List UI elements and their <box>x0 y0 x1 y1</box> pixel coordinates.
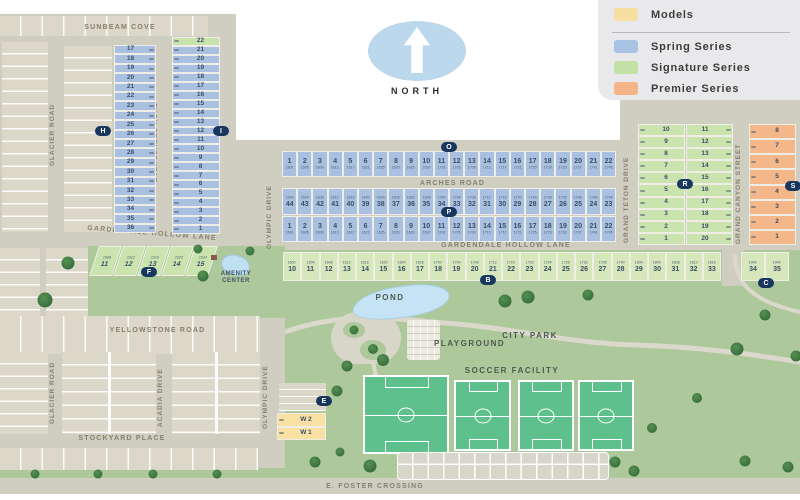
tree-icon <box>522 291 535 304</box>
hotspot-marker-I[interactable]: I <box>213 126 229 136</box>
lot-10[interactable]: 10 <box>638 124 685 136</box>
lot-address: 1737 <box>574 166 582 170</box>
lot-27[interactable]: 27 <box>114 139 156 148</box>
lot-12[interactable]: 160812 <box>320 252 338 281</box>
lot-address: 1736 <box>598 261 606 265</box>
hotspot-marker-R[interactable]: R <box>677 179 693 189</box>
lot-19[interactable]: 170419 <box>447 252 465 281</box>
lot-2[interactable]: 21605 <box>297 151 312 177</box>
address-mark <box>726 202 731 204</box>
lot-26[interactable]: 26 <box>114 130 156 139</box>
lot-18[interactable]: 181729 <box>540 151 555 177</box>
address-mark <box>149 58 154 60</box>
lot-40[interactable]: 161640 <box>343 188 358 215</box>
lot-4[interactable]: 41613 <box>328 151 343 177</box>
address-mark <box>726 141 731 143</box>
lot-10[interactable]: 101637 <box>419 216 434 242</box>
lot-7[interactable]: 7 <box>749 139 796 154</box>
lot-2[interactable]: 2 <box>638 221 685 233</box>
lot-address: 1737 <box>574 231 582 235</box>
tree-icon <box>692 393 702 403</box>
lot-6[interactable]: 61621 <box>358 151 373 177</box>
lot-address: 1732 <box>580 261 588 265</box>
lot-30[interactable]: 180430 <box>648 252 666 281</box>
block-mid-left-a <box>0 248 40 318</box>
lot-28[interactable]: 174028 <box>612 252 630 281</box>
legend-divider <box>612 32 790 33</box>
street-label-grand-teton-drive: GRAND TETON DRIVE <box>623 156 630 244</box>
lot-30[interactable]: 171630 <box>495 188 510 215</box>
lot-7[interactable]: 7 <box>172 171 220 180</box>
lot-3[interactable]: 3 <box>749 200 796 215</box>
address-mark <box>726 165 731 167</box>
lot-32[interactable]: 32 <box>114 186 156 195</box>
penalty-box <box>469 381 499 392</box>
lot-address: 1628 <box>416 261 424 265</box>
address-mark <box>174 112 179 114</box>
address-mark <box>174 202 179 204</box>
lot-30[interactable]: 30 <box>114 167 156 176</box>
lot-34[interactable]: 34 <box>114 205 156 214</box>
lot-10[interactable]: 160010 <box>283 252 301 281</box>
lot-23[interactable]: 174423 <box>601 188 616 215</box>
address-mark <box>751 131 756 133</box>
lot-23[interactable]: 172023 <box>520 252 538 281</box>
lot-33[interactable]: 181633 <box>703 252 721 281</box>
lot-35[interactable]: 190435 <box>765 252 789 281</box>
lot-8[interactable]: 8 <box>638 148 685 160</box>
lot-address: 1632 <box>407 196 415 200</box>
legend-label: Signature Series <box>651 62 751 74</box>
address-mark <box>174 157 179 159</box>
lot-33[interactable]: 33 <box>114 196 156 205</box>
address-mark <box>149 115 154 117</box>
lot-18[interactable]: 18 <box>114 54 156 63</box>
lot-21[interactable]: 21 <box>114 83 156 92</box>
lot-address: 1612 <box>343 261 351 265</box>
lot-address: 1608 <box>316 196 324 200</box>
lot-24[interactable]: 24 <box>114 111 156 120</box>
address-mark <box>751 236 756 238</box>
tree-icon <box>583 290 594 301</box>
lot-20[interactable]: 20 <box>686 233 733 245</box>
lot-13[interactable]: 131709 <box>464 151 479 177</box>
lot-address: 1724 <box>544 261 552 265</box>
soccer-field-2 <box>454 380 511 451</box>
lot-1[interactable]: 1 <box>638 233 685 245</box>
block-west-column <box>2 42 48 232</box>
lot-12[interactable]: 121705 <box>449 216 464 242</box>
tree-icon <box>332 386 343 397</box>
lot-W1[interactable]: W 1 <box>277 427 326 441</box>
lot-address: 1609 <box>316 166 324 170</box>
hotspot-marker-S[interactable]: S <box>785 181 800 191</box>
street-label-gardendale-east: GARDENDALE HOLLOW LANE <box>436 242 576 249</box>
lot-6[interactable]: 6 <box>172 180 220 189</box>
lot-9[interactable]: 91633 <box>404 151 419 177</box>
lot-20[interactable]: 201737 <box>571 216 586 242</box>
tree-icon <box>364 460 377 473</box>
lot-2[interactable]: 2 <box>172 216 220 225</box>
lot-address: 1608 <box>325 261 333 265</box>
lot-7[interactable]: 71625 <box>373 216 388 242</box>
penalty-box <box>592 381 621 392</box>
lot-address: 1728 <box>544 196 552 200</box>
lot-address: 1741 <box>589 231 597 235</box>
lot-address: 1600 <box>288 261 296 265</box>
lot-23[interactable]: 23 <box>114 101 156 110</box>
lot-14[interactable]: 14 <box>686 160 733 172</box>
lot-13[interactable]: 13 <box>172 118 220 127</box>
lot-26[interactable]: 173226 <box>575 252 593 281</box>
hotspot-marker-H[interactable]: H <box>95 126 111 136</box>
address-mark <box>640 129 645 131</box>
lot-22[interactable]: 171622 <box>502 252 520 281</box>
address-mark <box>174 148 179 150</box>
lot-address: 1620 <box>362 196 370 200</box>
spring-column-i: 22212019181716151413121110987654321 <box>172 37 220 234</box>
lot-20[interactable]: 20 <box>172 55 220 64</box>
lot-27[interactable]: 172827 <box>540 188 555 215</box>
lot-24[interactable]: 172424 <box>539 252 557 281</box>
lot-17[interactable]: 162817 <box>411 252 429 281</box>
lot-address: 1713 <box>483 231 491 235</box>
lot-address: 1601 <box>286 166 294 170</box>
lot-address: 1700 <box>434 261 442 265</box>
lot-15[interactable]: 15 <box>172 100 220 109</box>
lot-16[interactable]: 161721 <box>510 151 525 177</box>
lot-1[interactable]: 11601 <box>282 151 297 177</box>
lot-6[interactable]: 61621 <box>358 216 373 242</box>
lot-address: 1800 <box>635 261 643 265</box>
hotspot-marker-B[interactable]: B <box>480 275 496 285</box>
lot-9[interactable]: 9 <box>172 153 220 162</box>
lot-37[interactable]: 162837 <box>388 188 403 215</box>
arches-row-south: 1160121605316094161351617616217162581629… <box>282 216 616 242</box>
lot-W2[interactable]: W 2 <box>277 413 326 427</box>
lot-20[interactable]: 201737 <box>571 151 586 177</box>
lot-address: 1816 <box>708 261 716 265</box>
address-mark <box>149 162 154 164</box>
lot-36[interactable]: 36 <box>114 224 156 233</box>
hotspot-marker-C[interactable]: C <box>758 278 774 288</box>
lot-address: 1629 <box>392 231 400 235</box>
lot-31[interactable]: 171231 <box>479 188 494 215</box>
lot-31[interactable]: 31 <box>114 177 156 186</box>
tree-icon <box>31 470 40 479</box>
lot-32[interactable]: 170832 <box>464 188 479 215</box>
lot-address: 1709 <box>468 231 476 235</box>
tree-icon <box>760 310 771 321</box>
lot-address: 1616 <box>346 196 354 200</box>
lot-32[interactable]: 181232 <box>685 252 703 281</box>
lot-35[interactable]: 35 <box>114 214 156 223</box>
address-mark <box>149 143 154 145</box>
lot-34[interactable]: 190034 <box>741 252 765 281</box>
lot-5[interactable]: 51617 <box>343 216 358 242</box>
tree-icon <box>791 351 800 362</box>
lot-28[interactable]: 28 <box>114 148 156 157</box>
lot-41[interactable]: 161241 <box>328 188 343 215</box>
lot-3[interactable]: 3 <box>172 207 220 216</box>
lot-17[interactable]: 17 <box>172 82 220 91</box>
amenity-building <box>211 255 217 260</box>
address-mark <box>149 199 154 201</box>
address-mark <box>149 180 154 182</box>
address-mark <box>149 190 154 192</box>
lot-19[interactable]: 191733 <box>555 216 570 242</box>
address-mark <box>726 190 731 192</box>
lot-11[interactable]: 11 <box>686 124 733 136</box>
street-label-grand-canyon-street: GRAND CANYON STREET <box>735 156 742 244</box>
lot-7[interactable]: 71625 <box>373 151 388 177</box>
address-mark <box>174 40 179 42</box>
soccer-field-3 <box>518 380 574 451</box>
arches-row-north: 1160121605316094161351617616217162581629… <box>282 151 616 177</box>
lot-18[interactable]: 18 <box>172 73 220 82</box>
address-mark <box>751 221 756 223</box>
lot-address: 1729 <box>544 166 552 170</box>
address-mark <box>726 226 731 228</box>
address-mark <box>174 220 179 222</box>
lot-17[interactable]: 17 <box>114 45 156 54</box>
address-mark <box>149 227 154 229</box>
lot-8[interactable]: 81629 <box>388 151 403 177</box>
lot-10[interactable]: 101637 <box>419 151 434 177</box>
tree-icon <box>740 456 751 467</box>
model-lots: W 2W 1 <box>277 413 326 440</box>
lot-6[interactable]: 6 <box>749 154 796 169</box>
lot-19[interactable]: 191733 <box>555 151 570 177</box>
lot-address: 1904 <box>773 261 781 265</box>
lot-21[interactable]: 211741 <box>586 216 601 242</box>
lot-25[interactable]: 25 <box>114 120 156 129</box>
lot-address: 1729 <box>544 231 552 235</box>
penalty-box <box>532 381 561 392</box>
lot-address: 1717 <box>498 166 506 170</box>
lot-28[interactable]: 172428 <box>525 188 540 215</box>
address-mark <box>174 211 179 213</box>
lot-14[interactable]: 141713 <box>479 216 494 242</box>
lot-1[interactable]: 1 <box>749 230 796 245</box>
lot-11[interactable]: 11 <box>172 135 220 144</box>
lot-9[interactable]: 9 <box>638 136 685 148</box>
lot-address: 1617 <box>346 231 354 235</box>
lot-29[interactable]: 180029 <box>630 252 648 281</box>
address-mark <box>726 129 731 131</box>
lot-29[interactable]: 172029 <box>510 188 525 215</box>
lot-24[interactable]: 174024 <box>586 188 601 215</box>
lot-17[interactable]: 171725 <box>525 216 540 242</box>
lot-1[interactable]: 1 <box>172 225 220 234</box>
lot-address: 1609 <box>316 231 324 235</box>
address-mark <box>174 184 179 186</box>
lot-18[interactable]: 170018 <box>429 252 447 281</box>
tree-icon <box>94 470 103 479</box>
lot-2[interactable]: 21605 <box>297 216 312 242</box>
lot-address: 1721 <box>513 231 521 235</box>
lot-14[interactable]: 14 <box>172 109 220 118</box>
lot-1[interactable]: 11601 <box>282 216 297 242</box>
lot-address: 1524 <box>198 256 207 260</box>
lot-14[interactable]: 161614 <box>356 252 374 281</box>
lot-3[interactable]: 31609 <box>312 151 327 177</box>
tree-icon <box>499 295 512 308</box>
address-mark <box>279 432 284 434</box>
soccer-facility-label: SOCCER FACILITY <box>462 366 562 375</box>
tree-icon <box>350 326 359 335</box>
lot-address: 1612 <box>331 196 339 200</box>
lot-18[interactable]: 181729 <box>540 216 555 242</box>
address-mark <box>640 190 645 192</box>
lot-address: 1633 <box>407 166 415 170</box>
lot-address: 1705 <box>453 231 461 235</box>
penalty-box <box>592 439 621 450</box>
lot-29[interactable]: 29 <box>114 158 156 167</box>
lot-44[interactable]: 160044 <box>282 188 297 215</box>
signature-swatch <box>614 61 638 74</box>
lot-15[interactable]: 151717 <box>495 216 510 242</box>
north-label: NORTH <box>368 86 466 96</box>
lot-38[interactable]: 162438 <box>373 188 388 215</box>
legend-item-spring[interactable]: Spring Series <box>614 40 732 53</box>
lot-35[interactable]: 163635 <box>419 188 434 215</box>
lot-address: 1520 <box>174 256 183 260</box>
lot-7[interactable]: 7 <box>638 160 685 172</box>
lot-16[interactable]: 162416 <box>393 252 411 281</box>
lot-4[interactable]: 4 <box>638 197 685 209</box>
hotspot-marker-O[interactable]: O <box>441 142 457 152</box>
lot-22[interactable]: 22 <box>114 92 156 101</box>
lot-18[interactable]: 18 <box>686 209 733 221</box>
lot-11[interactable]: 160411 <box>301 252 319 281</box>
lot-25[interactable]: 172825 <box>557 252 575 281</box>
hotspot-marker-F[interactable]: F <box>141 267 157 277</box>
lot-3[interactable]: 31609 <box>312 216 327 242</box>
hotspot-marker-E[interactable]: E <box>316 396 332 406</box>
lot-25[interactable]: 173625 <box>571 188 586 215</box>
lot-4[interactable]: 4 <box>172 198 220 207</box>
lot-10[interactable]: 10 <box>172 144 220 153</box>
lot-11[interactable]: 111701 <box>434 216 449 242</box>
lot-17[interactable]: 17 <box>686 197 733 209</box>
lot-17[interactable]: 171725 <box>525 151 540 177</box>
lot-43[interactable]: 160443 <box>297 188 312 215</box>
address-mark <box>174 94 179 96</box>
lot-14[interactable]: 141713 <box>479 151 494 177</box>
address-mark <box>726 238 731 240</box>
parking-lot <box>397 452 609 480</box>
legend-label: Spring Series <box>651 41 732 53</box>
lot-address: 1613 <box>331 231 339 235</box>
legend-item-premier[interactable]: Premier Series <box>614 82 739 95</box>
legend-label: Premier Series <box>651 83 739 95</box>
tree-icon <box>336 448 345 457</box>
address-mark <box>726 153 731 155</box>
lot-11[interactable]: 111701 <box>434 151 449 177</box>
lot-15[interactable]: 151717 <box>495 151 510 177</box>
lot-5[interactable]: 5 <box>172 189 220 198</box>
lot-3[interactable]: 3 <box>638 209 685 221</box>
lot-15[interactable]: 162015 <box>374 252 392 281</box>
lot-8[interactable]: 81629 <box>388 216 403 242</box>
lot-39[interactable]: 162039 <box>358 188 373 215</box>
lot-13[interactable]: 13 <box>686 148 733 160</box>
address-mark <box>751 206 756 208</box>
lot-address: 1616 <box>361 261 369 265</box>
lot-13[interactable]: 161213 <box>338 252 356 281</box>
hotspot-marker-P[interactable]: P <box>441 207 457 217</box>
legend-label: Models <box>651 9 694 21</box>
tree-icon <box>629 466 640 477</box>
lot-20[interactable]: 20 <box>114 73 156 82</box>
lot-16[interactable]: 161721 <box>510 216 525 242</box>
lot-21[interactable]: 211741 <box>586 151 601 177</box>
legend-item-signature[interactable]: Signature Series <box>614 61 751 74</box>
address-mark <box>640 153 645 155</box>
lot-21[interactable]: 21 <box>172 46 220 55</box>
address-mark <box>751 161 756 163</box>
lot-19[interactable]: 19 <box>686 221 733 233</box>
lot-26[interactable]: 173226 <box>555 188 570 215</box>
lot-address: 1717 <box>498 231 506 235</box>
lot-36[interactable]: 163236 <box>404 188 419 215</box>
lot-27[interactable]: 173627 <box>593 252 611 281</box>
lot-address: 1604 <box>301 196 309 200</box>
lot-16[interactable]: 16 <box>172 91 220 100</box>
lot-address: 1617 <box>346 166 354 170</box>
lot-19[interactable]: 19 <box>172 64 220 73</box>
block-yellowstone-row <box>0 316 260 354</box>
legend-item-models[interactable]: Models <box>614 8 694 21</box>
lot-12[interactable]: 12 <box>686 136 733 148</box>
lot-16[interactable]: 16 <box>686 184 733 196</box>
lot-22[interactable]: 221745 <box>601 151 616 177</box>
lot-42[interactable]: 160842 <box>312 188 327 215</box>
address-mark <box>149 49 154 51</box>
address-mark <box>174 166 179 168</box>
address-mark <box>751 146 756 148</box>
legend: Models Spring Series Signature Series Pr… <box>598 0 800 100</box>
lot-8[interactable]: 8 <box>749 124 796 139</box>
lot-4[interactable]: 41613 <box>328 216 343 242</box>
lot-2[interactable]: 2 <box>749 215 796 230</box>
lot-19[interactable]: 19 <box>114 64 156 73</box>
lot-8[interactable]: 8 <box>172 162 220 171</box>
street-label-olympic-drive-south: OLYMPIC DRIVE <box>262 364 269 430</box>
penalty-box <box>469 439 499 450</box>
lot-22[interactable]: 221745 <box>601 216 616 242</box>
address-mark <box>149 218 154 220</box>
lot-address: 1628 <box>392 196 400 200</box>
lot-22[interactable]: 22 <box>172 37 220 46</box>
lot-address: 1740 <box>589 196 597 200</box>
lot-address: 1741 <box>589 166 597 170</box>
address-mark <box>640 177 645 179</box>
lot-31[interactable]: 180831 <box>666 252 684 281</box>
lot-address: 1704 <box>452 261 460 265</box>
lot-9[interactable]: 91633 <box>404 216 419 242</box>
lot-address: 1516 <box>150 256 159 260</box>
lot-address: 1625 <box>377 166 385 170</box>
lot-15[interactable]: 15 <box>686 172 733 184</box>
block-glacier-acadia <box>62 352 156 434</box>
tree-icon <box>377 354 389 366</box>
lot-12[interactable]: 121705 <box>449 151 464 177</box>
lot-5[interactable]: 51617 <box>343 151 358 177</box>
lot-13[interactable]: 131709 <box>464 216 479 242</box>
street-label-e-foster-crossing: E. FOSTER CROSSING <box>315 483 435 490</box>
